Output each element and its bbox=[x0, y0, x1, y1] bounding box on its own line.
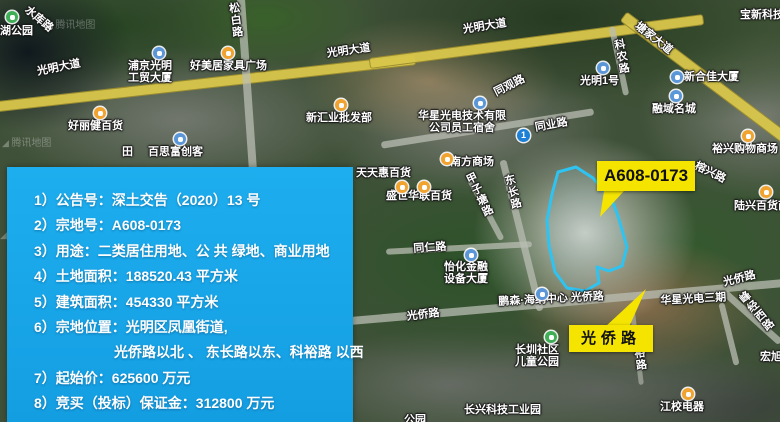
park-poi-icon[interactable] bbox=[6, 11, 18, 23]
shop-poi-icon[interactable] bbox=[760, 186, 772, 198]
map-label: 江校电器 bbox=[660, 401, 704, 413]
shop-poi-icon[interactable] bbox=[441, 153, 453, 165]
map-label: 新合佳大厦 bbox=[684, 71, 739, 83]
park-poi-icon[interactable] bbox=[545, 331, 557, 343]
building-poi-icon[interactable] bbox=[174, 133, 186, 145]
road-callout-pointer bbox=[605, 289, 646, 327]
panel-line: 6）宗地位置：光明区凤凰街道, bbox=[34, 315, 353, 340]
parcel-id-callout: A608-0173 bbox=[597, 161, 695, 191]
shop-poi-icon[interactable] bbox=[335, 99, 347, 111]
map-watermark: 腾讯地图 bbox=[46, 16, 95, 31]
shop-poi-icon[interactable] bbox=[682, 388, 694, 400]
shop-poi-icon[interactable] bbox=[222, 47, 234, 59]
land-info-lines: 1）公告号：深土交告（2020）13 号2）宗地号：A608-01733）用途：… bbox=[7, 167, 353, 417]
panel-line: 2）宗地号：A608-0173 bbox=[34, 213, 353, 238]
panel-line: 5）建筑面积：454330 平方米 bbox=[34, 290, 353, 315]
map-label: 怡化金融设备大厦 bbox=[444, 261, 488, 285]
building-poi-icon[interactable] bbox=[474, 97, 486, 109]
panel-line: 3）用途：二类居住用地、公 共 绿地、商业用地 bbox=[34, 239, 353, 264]
panel-line: 8）竞买（投标）保证金：312800 万元 bbox=[34, 391, 353, 416]
building-poi-icon[interactable] bbox=[536, 288, 548, 300]
road-name-callout: 光侨路 bbox=[569, 325, 653, 352]
map-label: 盛世华联百货 bbox=[386, 190, 452, 202]
metro-poi-icon[interactable]: 1 bbox=[517, 129, 530, 142]
building-poi-icon[interactable] bbox=[597, 62, 609, 74]
map-label: 宝新科技 bbox=[740, 9, 780, 21]
shop-poi-icon[interactable] bbox=[94, 107, 106, 119]
map-label: 长圳社区儿童公园 bbox=[515, 344, 559, 368]
map-label: 公园 bbox=[404, 414, 426, 422]
map-label: 新汇业批发部 bbox=[306, 112, 372, 124]
map-label: 宏旭大厦 bbox=[760, 351, 780, 363]
map-label: 同仁路 bbox=[413, 241, 447, 255]
map-label: 裕兴购物商场 bbox=[712, 143, 778, 155]
map-label: 华星光电技术有限公司员工宿舍 bbox=[418, 110, 506, 134]
map-label: 融域名城 bbox=[652, 103, 696, 115]
panel-line: 光侨路以北 、 东长路以东、科裕路 以西 bbox=[34, 340, 353, 365]
map-watermark: 腾讯地图 bbox=[2, 134, 51, 149]
map-label: 田 bbox=[122, 146, 133, 158]
map-label: 湖公园 bbox=[0, 25, 33, 37]
shop-poi-icon[interactable] bbox=[396, 181, 408, 193]
map-label: 光明1号 bbox=[580, 75, 619, 87]
map-label: 南方商场 bbox=[450, 156, 494, 168]
map-label: 长兴科技工业园 bbox=[464, 404, 541, 416]
panel-line: 7）起始价：625600 万元 bbox=[34, 366, 353, 391]
screenshot-root: 湖公园水库路松白路光明大道浦京光明工贸大厦好美居家具广场光明大道好丽健百货百思富… bbox=[0, 0, 780, 422]
land-info-panel: 1）公告号：深土交告（2020）13 号2）宗地号：A608-01733）用途：… bbox=[7, 167, 353, 422]
map-label: 天天惠百货 bbox=[356, 167, 411, 179]
panel-line: 1）公告号：深土交告（2020）13 号 bbox=[34, 188, 353, 213]
shop-poi-icon[interactable] bbox=[742, 130, 754, 142]
building-poi-icon[interactable] bbox=[153, 47, 165, 59]
panel-line: 4）土地面积：188520.43 平方米 bbox=[34, 264, 353, 289]
map-label: 浦京光明工贸大厦 bbox=[128, 60, 172, 84]
building-poi-icon[interactable] bbox=[671, 71, 683, 83]
map-label: 百思富创客 bbox=[148, 146, 203, 158]
building-poi-icon[interactable] bbox=[465, 249, 477, 261]
map-label: 陆兴百货商场 bbox=[734, 200, 780, 212]
map-label: 好丽健百货 bbox=[68, 120, 123, 132]
shop-poi-icon[interactable] bbox=[418, 181, 430, 193]
map-label: 好美居家具广场 bbox=[190, 60, 267, 72]
building-poi-icon[interactable] bbox=[670, 90, 682, 102]
